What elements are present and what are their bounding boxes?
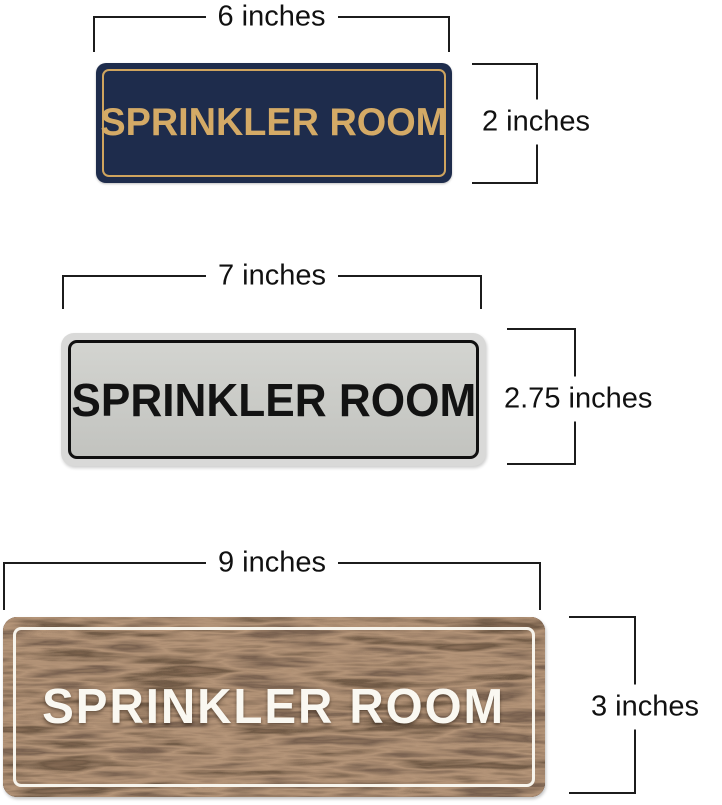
sign-silver-black: SPRINKLER ROOM	[61, 333, 486, 466]
sign-silver-black-text: SPRINKLER ROOM	[71, 373, 476, 427]
sign-navy-gold: SPRINKLER ROOM	[96, 63, 452, 183]
sign-walnut-white-text: SPRINKLER ROOM	[43, 679, 506, 735]
sign-walnut-white-border: SPRINKLER ROOM	[13, 627, 535, 787]
width-dimension-label-6in: 6 inches	[205, 1, 337, 34]
height-dimension-label-3in: 3 inches	[585, 685, 705, 730]
width-dimension-label-9in: 9 inches	[206, 547, 338, 580]
sign-navy-gold-text: SPRINKLER ROOM	[101, 101, 448, 145]
sign-walnut-white: SPRINKLER ROOM	[3, 617, 545, 797]
sign-size-diagram: 6 inches SPRINKLER ROOM 2 inches 7 inche…	[0, 0, 722, 805]
width-dimension-bracket-6in: 6 inches	[93, 16, 450, 52]
width-dimension-label-7in: 7 inches	[206, 260, 338, 293]
sign-silver-black-border: SPRINKLER ROOM	[68, 340, 479, 459]
width-dimension-bracket-9in: 9 inches	[3, 562, 541, 610]
sign-navy-gold-border: SPRINKLER ROOM	[102, 69, 446, 177]
height-dimension-label-2in: 2 inches	[476, 100, 596, 145]
width-dimension-bracket-7in: 7 inches	[62, 275, 482, 309]
height-dimension-label-2-75in: 2.75 inches	[498, 377, 658, 422]
